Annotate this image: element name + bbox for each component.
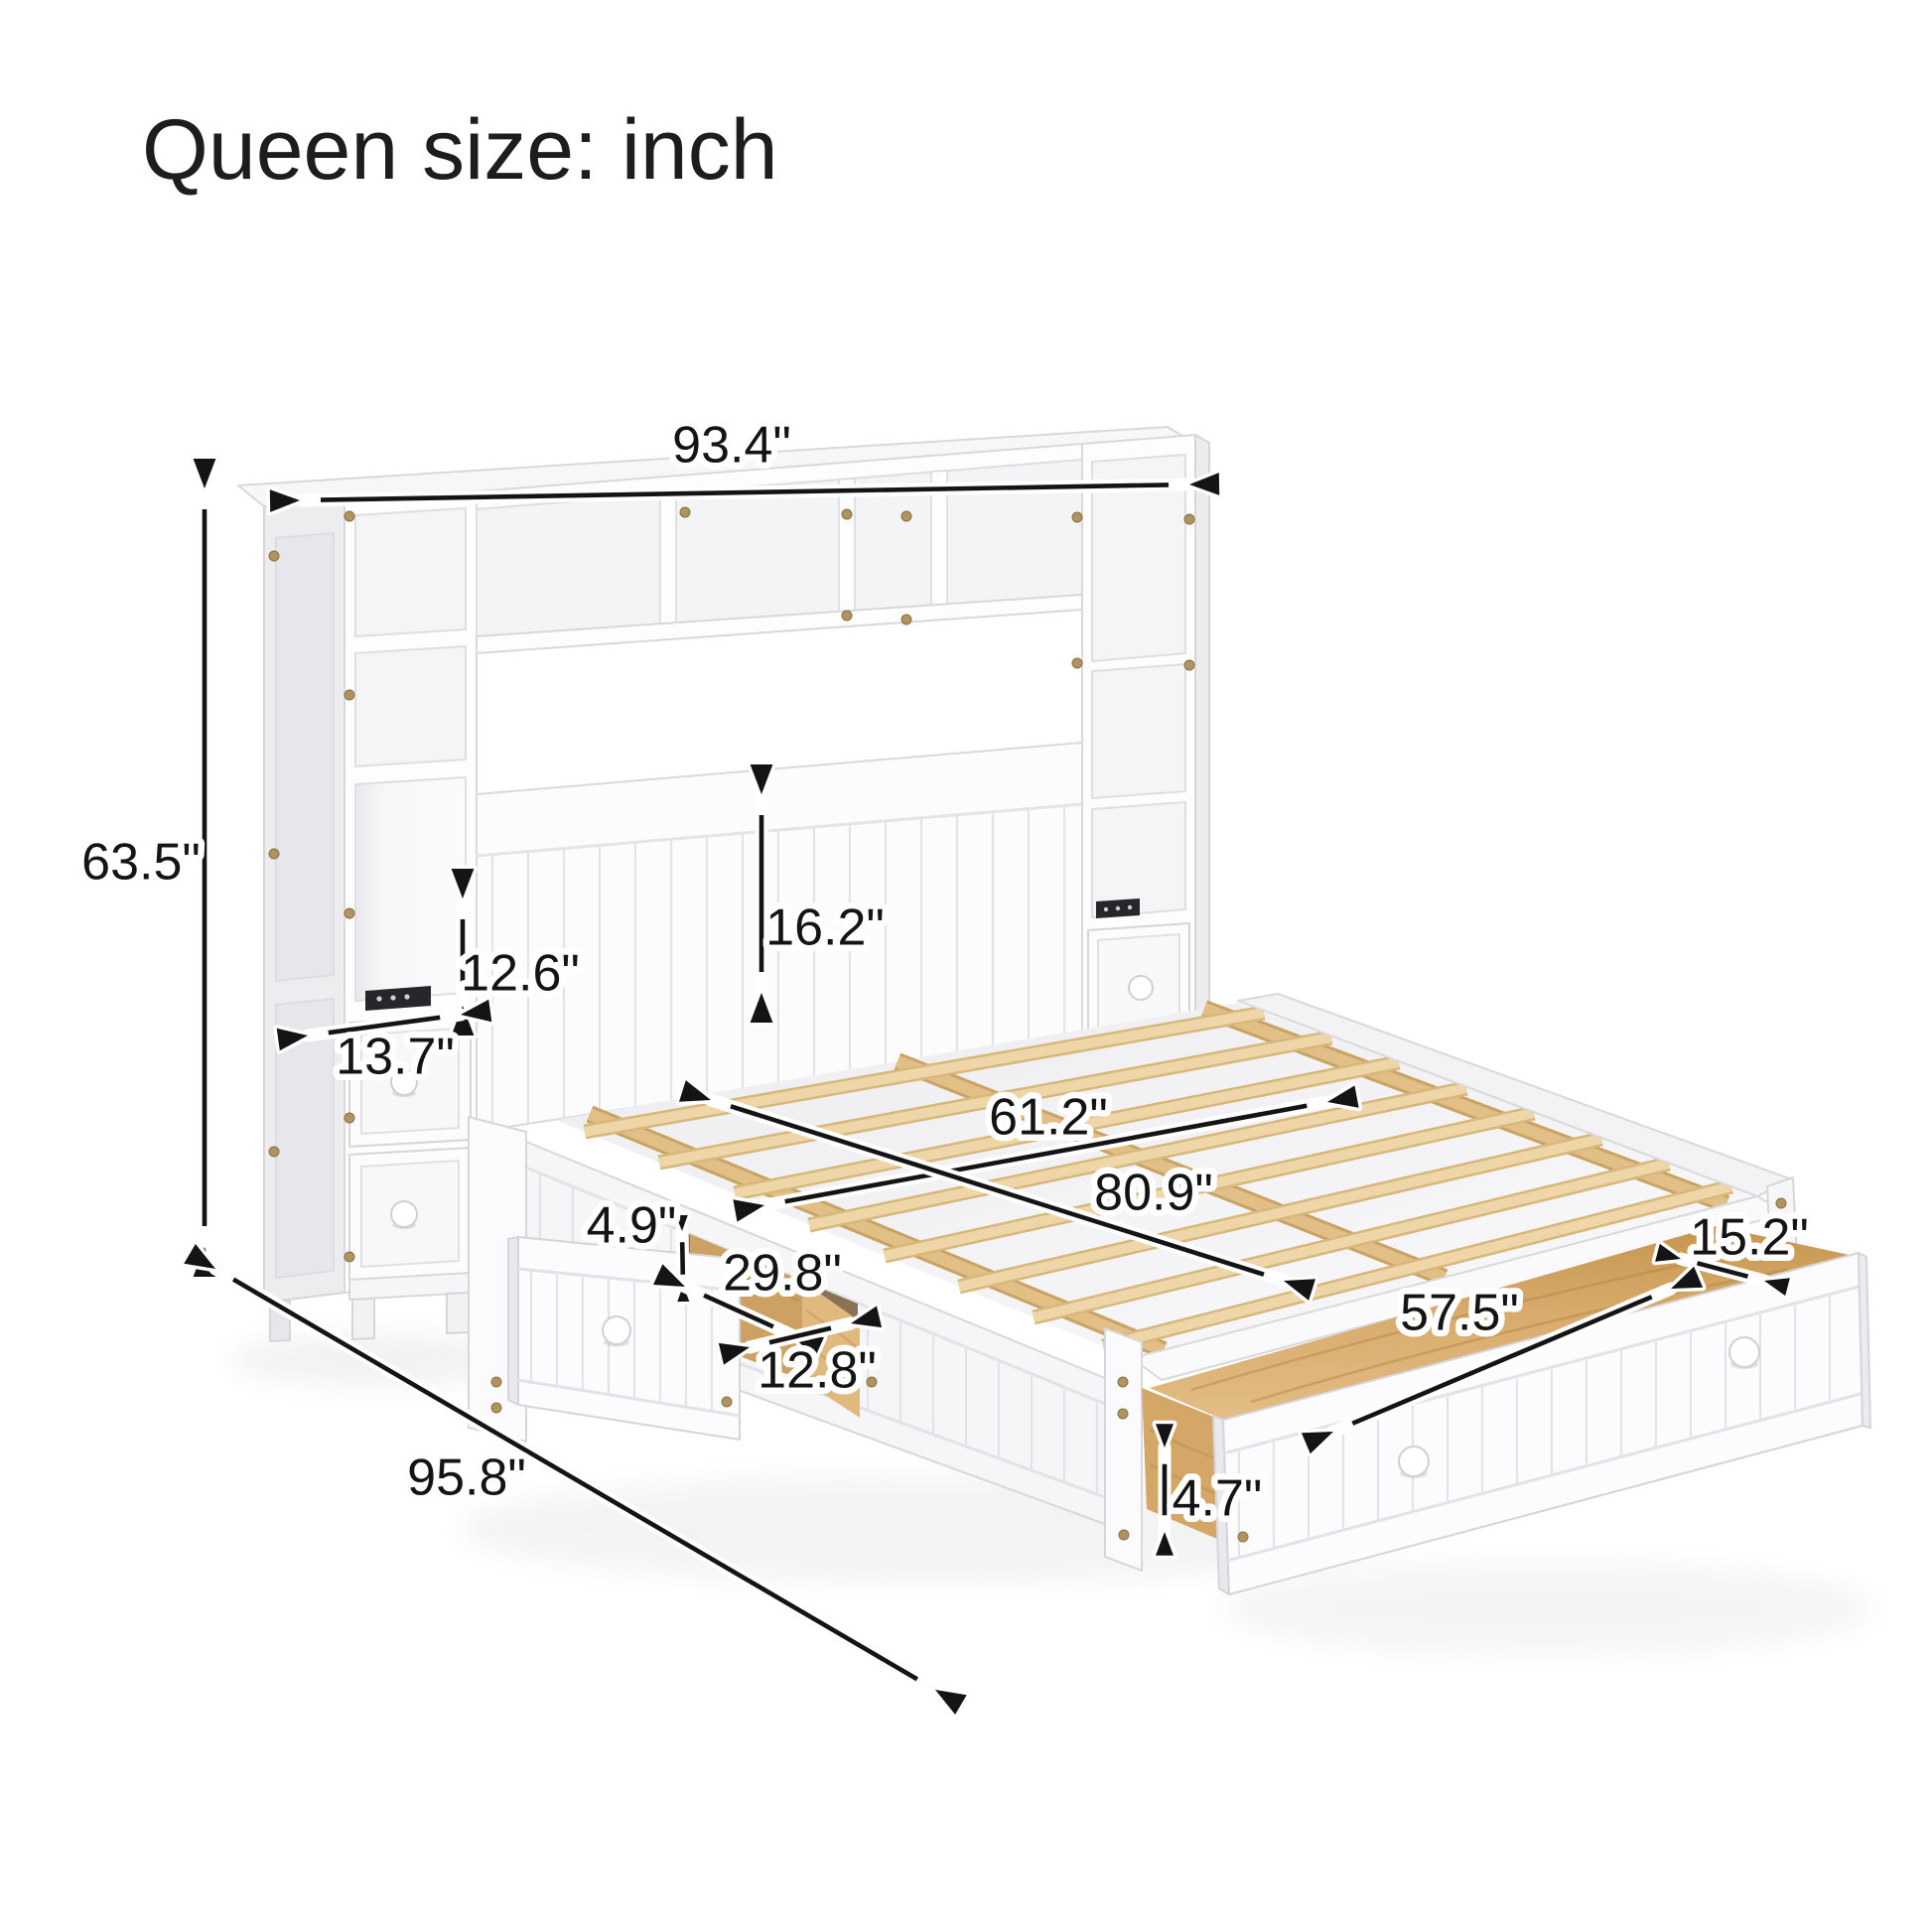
dim-label-shelf-niche-height: 12.6": [461, 945, 580, 1003]
drawer-knob: [391, 1201, 417, 1227]
dim-label-overall-width: 93.4": [672, 417, 791, 475]
dim-overall-height: 63.5": [81, 459, 215, 1277]
product-dimension-diagram: 93.4"63.5"12.6"16.2"13.7"61.2"80.9"4.9"2…: [0, 0, 1932, 1932]
dim-label-headboard-panel-height: 16.2": [765, 899, 885, 957]
dim-label-bed-width: 61.2": [989, 1089, 1108, 1147]
dim-label-foot-drawer-width: 57.5": [1400, 1285, 1519, 1342]
dim-label-overall-height: 63.5": [81, 834, 201, 892]
right-tower-cubby: [1092, 664, 1185, 798]
side-drawer-front: [508, 1237, 740, 1440]
tower-foot: [447, 1293, 469, 1333]
dim-label-bed-length: 80.9": [1094, 1165, 1213, 1222]
right-storage-tower: [1082, 435, 1209, 1052]
dim-label-overall-depth: 95.8": [407, 1449, 526, 1507]
left-tower-cubby: [355, 508, 466, 636]
drawer-knob: [1129, 976, 1153, 1000]
right-tower-side-panel: [1195, 435, 1209, 1042]
tower-foot: [352, 1299, 374, 1339]
drawer-knob: [603, 1316, 630, 1344]
bridge-divider: [660, 493, 676, 623]
dim-label-side-drawer-depth: 29.8": [723, 1245, 842, 1303]
dim-label-foot-drawer-depth: 15.2": [1690, 1209, 1809, 1267]
usb-charging-station: [1096, 898, 1140, 918]
left-tower-drawer: [349, 1148, 471, 1280]
drawer-knob: [1729, 1337, 1759, 1367]
page-title: Queen size: inch: [142, 102, 778, 198]
left-tower-niche: [355, 777, 466, 1001]
dim-label-nightstand-top-depth: 13.7": [336, 1029, 455, 1086]
dim-label-side-drawer-width: 12.8": [758, 1342, 877, 1400]
dim-label-side-drawer-height: 4.9": [587, 1197, 677, 1255]
dim-label-foot-drawer-height: 4.7": [1173, 1470, 1263, 1528]
drawer-knob: [1399, 1447, 1429, 1476]
left-tower-cubby: [355, 646, 466, 766]
left-storage-tower: [264, 491, 477, 1341]
bridge-divider: [839, 479, 855, 612]
